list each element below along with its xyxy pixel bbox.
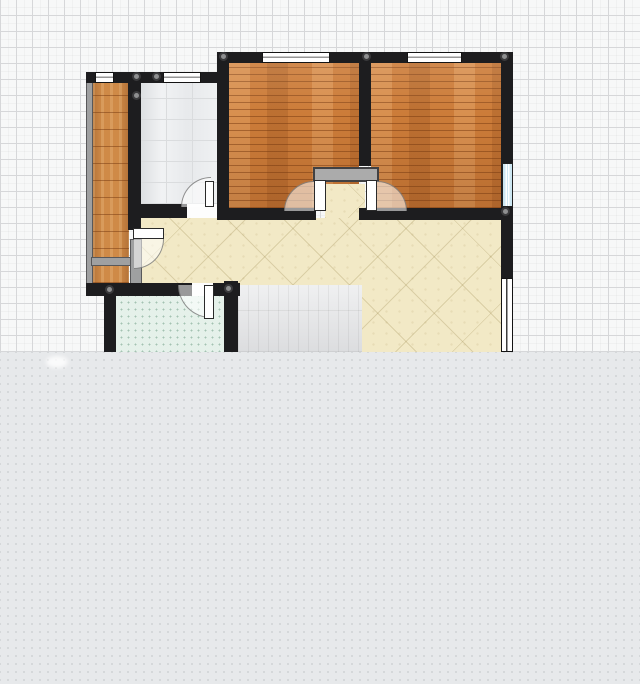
wall-bathroom-right[interactable] — [217, 52, 229, 218]
unrendered-area-overlay — [0, 352, 640, 684]
wall-joint[interactable] — [362, 52, 371, 61]
wall-joint[interactable] — [132, 72, 141, 81]
balcony-divider-wall[interactable] — [91, 257, 131, 266]
wall-joint[interactable] — [224, 284, 233, 293]
overlay-smudge — [46, 356, 68, 368]
wall-kitchen-top[interactable] — [86, 283, 192, 296]
wall-bedroom-separator[interactable] — [359, 52, 371, 166]
window-bathroom[interactable] — [163, 72, 201, 83]
floorplan-canvas[interactable] — [0, 0, 640, 684]
window-bedroom-left[interactable] — [262, 52, 330, 63]
kitchen-door-panel[interactable] — [204, 285, 214, 319]
wall-joint[interactable] — [105, 285, 114, 294]
wall-joint[interactable] — [132, 91, 141, 100]
wall-kitchen-left[interactable] — [104, 296, 116, 353]
wall-joint[interactable] — [501, 207, 510, 216]
window-bedroom-right-side[interactable] — [502, 163, 513, 207]
dining-area-floor[interactable] — [238, 285, 362, 352]
balcony-floor[interactable] — [92, 83, 129, 283]
window-living-side[interactable] — [501, 278, 513, 352]
bedroom-left-door-panel[interactable] — [314, 180, 326, 211]
balcony-door-panel[interactable] — [133, 228, 164, 239]
wall-bathroom-bottom[interactable] — [133, 204, 187, 218]
wall-joint[interactable] — [152, 72, 161, 81]
bathroom-door-panel[interactable] — [205, 181, 214, 207]
window-bedroom-right[interactable] — [407, 52, 462, 63]
wall-joint[interactable] — [219, 52, 228, 61]
wall-joint[interactable] — [500, 52, 509, 61]
window-balcony[interactable] — [95, 72, 114, 83]
bedroom-right-door-panel[interactable] — [366, 180, 377, 211]
